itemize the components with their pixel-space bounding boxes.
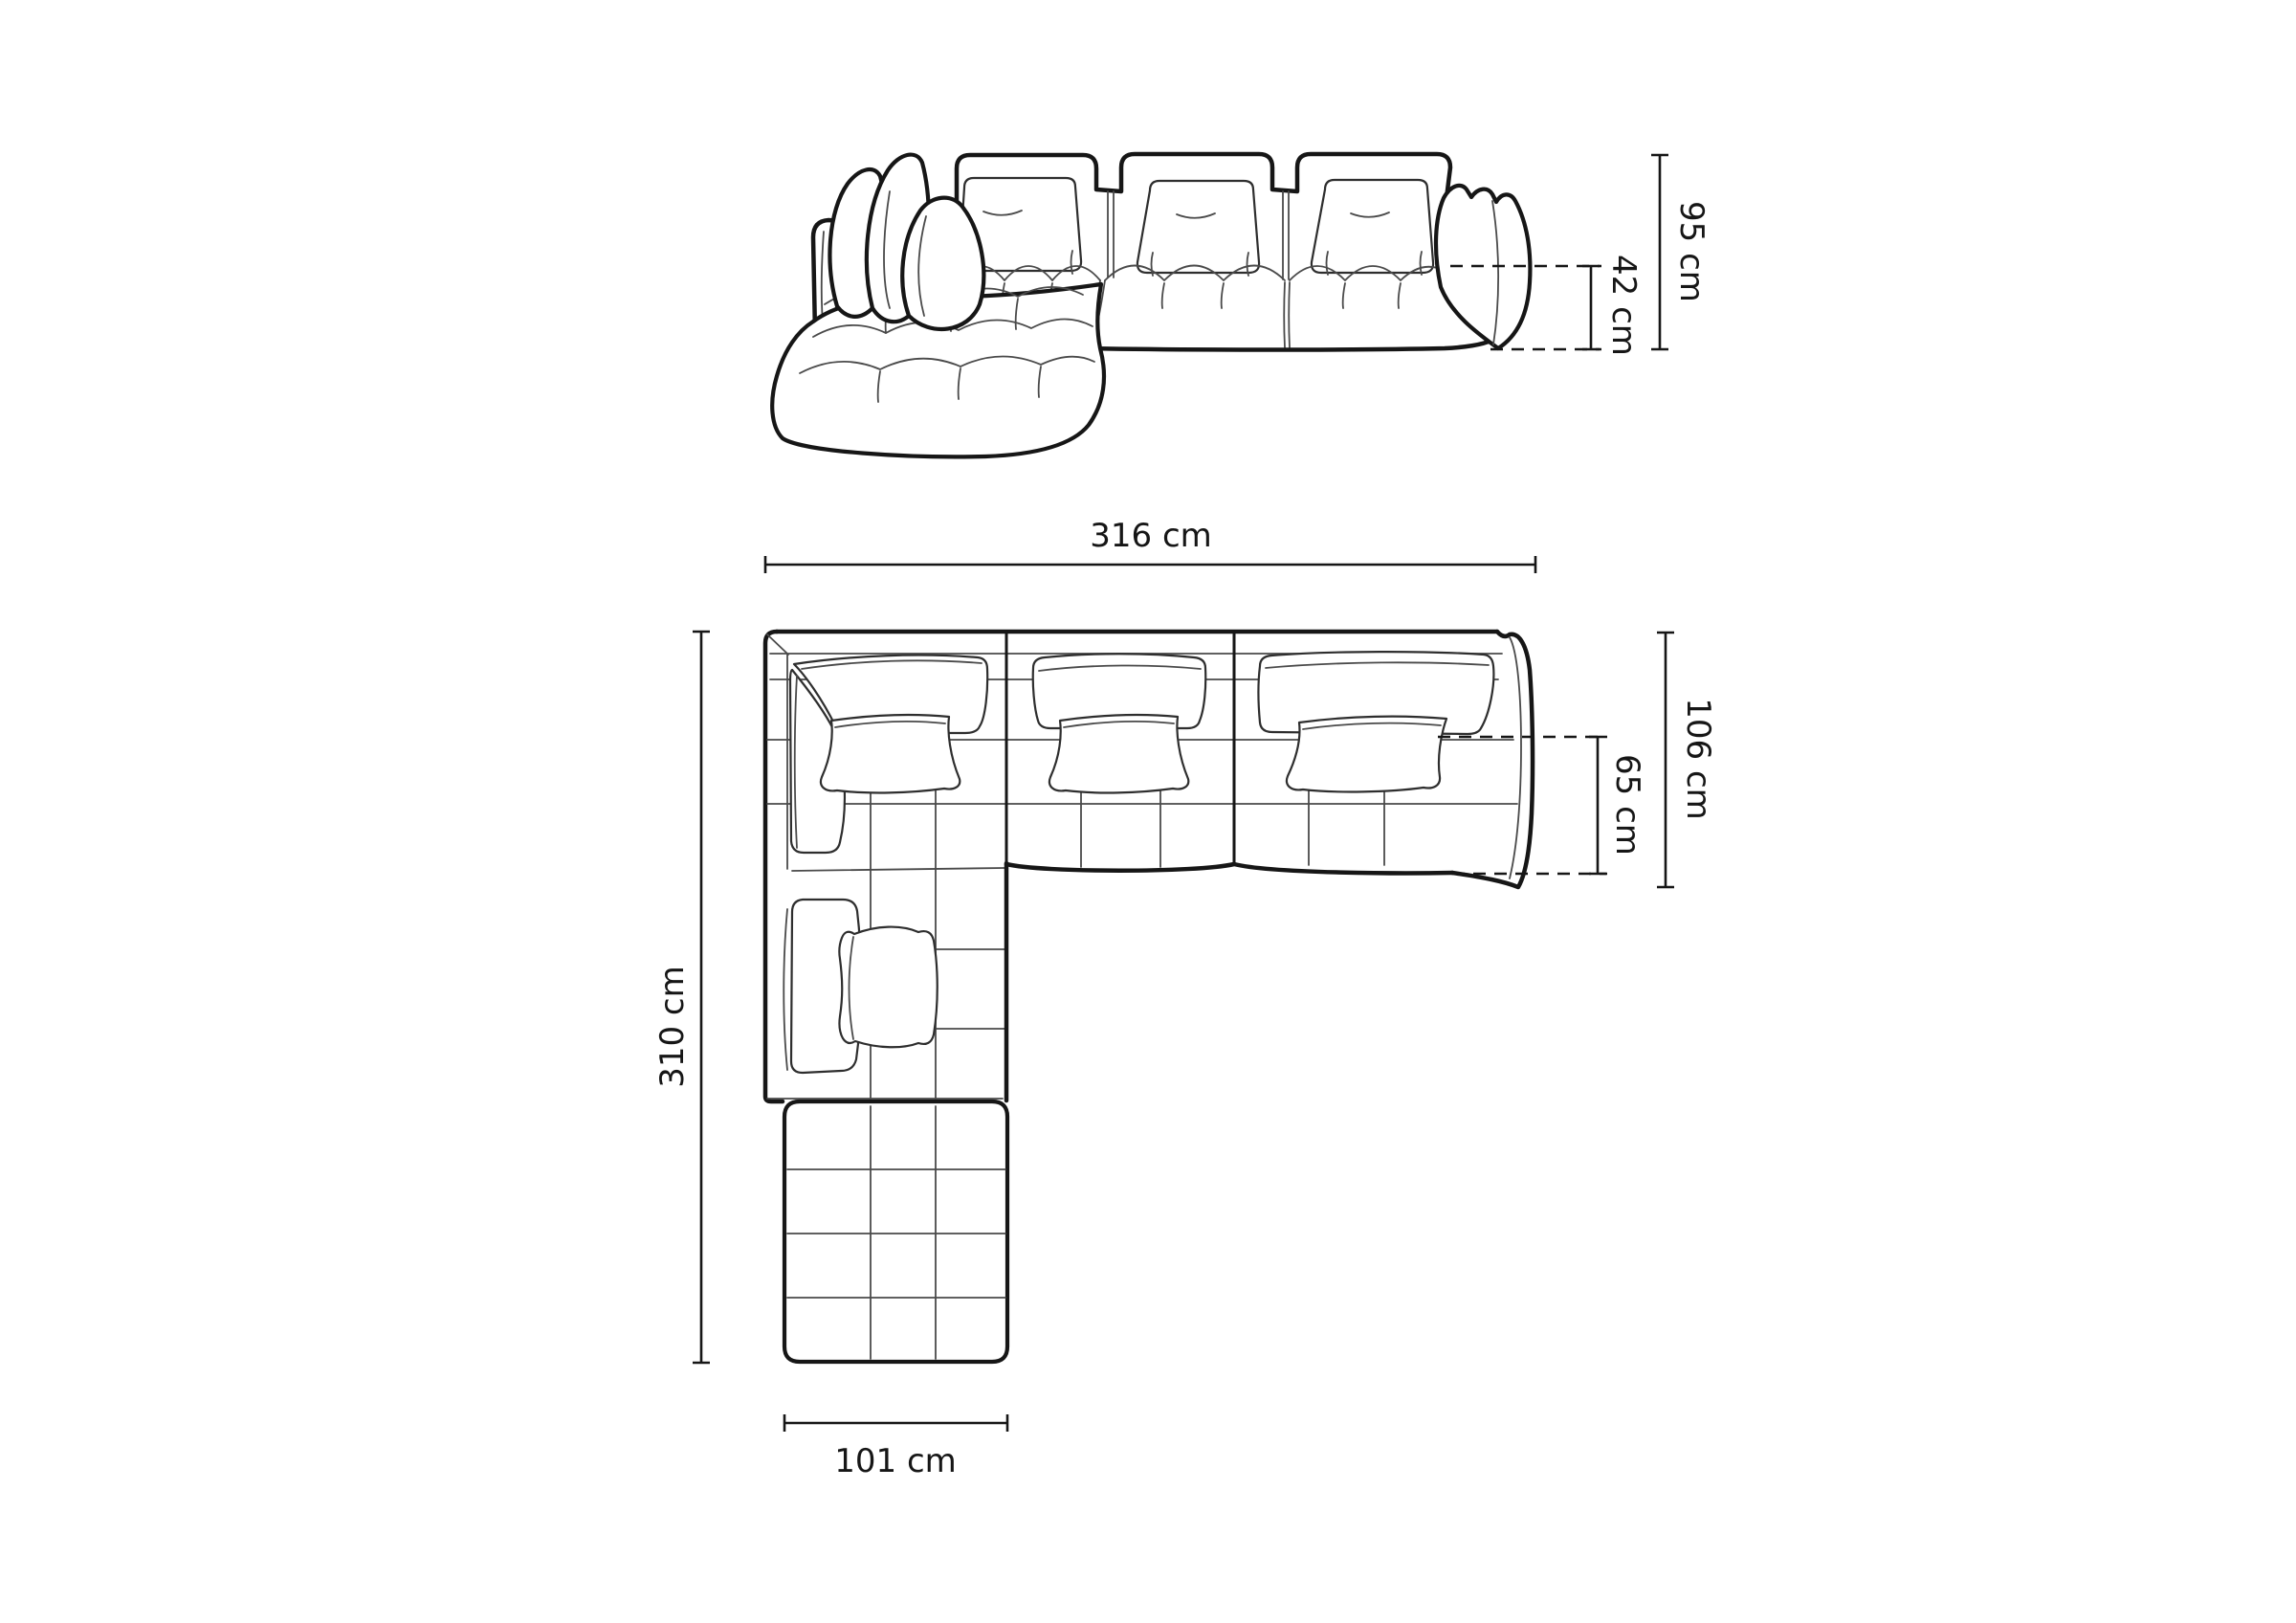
side-depth-label: 106 cm [1679, 698, 1717, 820]
front-pillow-stack [829, 155, 983, 329]
dimension-side-depth: 106 cm [1657, 633, 1717, 887]
plan-lumbar-pillow-left [821, 715, 960, 793]
plan-left-edge [765, 632, 783, 1101]
plan-row-front-edge [1006, 864, 1452, 873]
plan-tuft-columns [871, 789, 1384, 1099]
dimension-seat-depth: 65 cm [1438, 737, 1646, 874]
plan-corner-pillow [839, 927, 937, 1048]
stack-pillow-front [902, 198, 983, 329]
front-elevation-view: 95 cm 42 cm [772, 154, 1711, 456]
front-back-cushion-middle [1137, 181, 1259, 273]
front-back-cushion-right [1312, 180, 1433, 273]
seat-height-label: 42 cm [1604, 255, 1643, 356]
dimension-overall-height: 95 cm [1651, 155, 1711, 349]
sofa-dimensions-diagram: 95 cm 42 cm [0, 0, 2296, 1623]
chaise-width-label: 101 cm [834, 1442, 957, 1480]
dimension-overall-depth: 310 cm [653, 632, 710, 1363]
overall-height-label: 95 cm [1672, 201, 1711, 302]
seat-depth-label: 65 cm [1608, 754, 1646, 856]
plan-chaise [784, 1101, 1007, 1362]
dimension-overall-width: 316 cm [765, 517, 1535, 573]
dimension-chaise-width: 101 cm [784, 1414, 1007, 1480]
front-module-seams [1085, 280, 1290, 347]
plan-lumbar-pillow-middle [1049, 715, 1188, 793]
plan-corner-diagonal [767, 634, 788, 655]
seat-depth-extension-lines [1438, 737, 1607, 874]
plan-lumbar-pillow-right [1287, 717, 1446, 792]
top-plan-view: 316 cm 310 cm 106 cm 65 cm 101 cm [653, 517, 1717, 1480]
front-floor-line [1085, 341, 1490, 350]
overall-width-label: 316 cm [1090, 517, 1212, 555]
plan-right-armrest-seam [1510, 637, 1521, 878]
overall-depth-label: 310 cm [653, 966, 692, 1088]
